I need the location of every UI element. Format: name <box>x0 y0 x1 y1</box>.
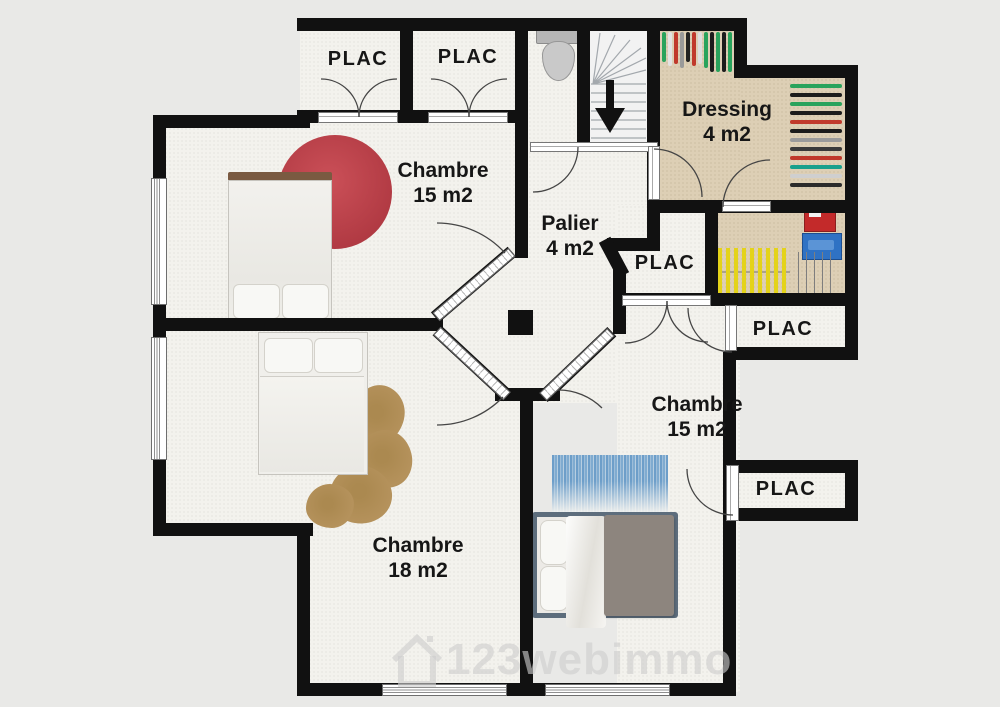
door <box>726 465 739 521</box>
house-icon <box>390 630 444 690</box>
door <box>428 112 508 123</box>
wall <box>153 523 313 536</box>
wall <box>515 18 528 258</box>
room-label-chambre-right: Chambre 15 m2 <box>651 393 742 443</box>
pillow <box>540 520 568 565</box>
tools-icon <box>798 252 832 294</box>
wall <box>726 347 858 360</box>
room-label-plac-top-right: PLAC <box>438 46 498 70</box>
room-label-dressing: Dressing 4 m2 <box>682 98 772 148</box>
room-name: PLAC <box>328 48 388 72</box>
wall <box>577 18 590 143</box>
bed-duvet <box>260 376 364 472</box>
room-area: 4 m2 <box>682 123 772 148</box>
bed-sheet <box>566 516 606 628</box>
structural-post <box>508 310 533 335</box>
pillow <box>314 338 363 373</box>
room-name: PLAC <box>756 478 816 502</box>
blue-rug-icon <box>552 455 668 513</box>
door <box>725 305 737 351</box>
room-name: PLAC <box>753 318 813 342</box>
bed-blanket <box>604 515 674 616</box>
room-name: Chambre <box>397 159 488 184</box>
floor-plan: PLAC PLAC Chambre 15 m2 Palier 4 m2 Dres… <box>0 0 1000 707</box>
sheepskin-rug-icon <box>306 484 354 528</box>
room-name: Chambre <box>651 393 742 418</box>
wall <box>400 18 413 123</box>
toilet-icon <box>534 24 582 80</box>
wall <box>160 115 310 128</box>
room-name: Chambre <box>372 534 463 559</box>
room-area: 4 m2 <box>541 237 598 262</box>
wall <box>726 460 858 473</box>
pillow <box>282 284 329 319</box>
room-area: 15 m2 <box>397 184 488 209</box>
room-name: PLAC <box>438 46 498 70</box>
clothes-rack-icon <box>656 32 742 72</box>
wall <box>734 65 858 78</box>
wall <box>845 460 858 521</box>
door <box>648 146 660 200</box>
pillow <box>233 284 280 319</box>
bed-icon <box>532 512 678 618</box>
pillow <box>540 566 568 611</box>
wall <box>733 508 858 521</box>
watermark-text: 123webimmo <box>446 635 732 685</box>
window <box>151 337 167 460</box>
room-label-plac-right: PLAC <box>753 318 813 342</box>
door <box>722 201 771 212</box>
wall <box>297 523 310 696</box>
room-name: Palier <box>541 212 598 237</box>
room-area: 18 m2 <box>372 559 463 584</box>
room-label-plac-top-left: PLAC <box>328 48 388 72</box>
bed-icon <box>258 332 368 475</box>
wall <box>705 205 718 305</box>
room-label-chambre-bottom-left: Chambre 18 m2 <box>372 534 463 584</box>
room-label-chambre-top-left: Chambre 15 m2 <box>397 159 488 209</box>
clothes-rack-icon <box>790 84 842 198</box>
room-name: PLAC <box>635 252 695 276</box>
watermark: 123webimmo <box>390 630 732 690</box>
door <box>318 112 398 123</box>
bed-icon <box>228 172 332 322</box>
door <box>622 295 711 306</box>
door <box>530 142 658 152</box>
room-label-plac-bottom-right: PLAC <box>756 478 816 502</box>
room-name: Dressing <box>682 98 772 123</box>
staircase-floor <box>590 31 647 143</box>
hanging-items-icon <box>718 248 790 298</box>
room-label-palier: Palier 4 m2 <box>541 212 598 262</box>
room-area: 15 m2 <box>651 418 742 443</box>
pillow <box>264 338 313 373</box>
room-label-plac-middle: PLAC <box>635 252 695 276</box>
window <box>151 178 167 305</box>
wall <box>153 318 443 331</box>
